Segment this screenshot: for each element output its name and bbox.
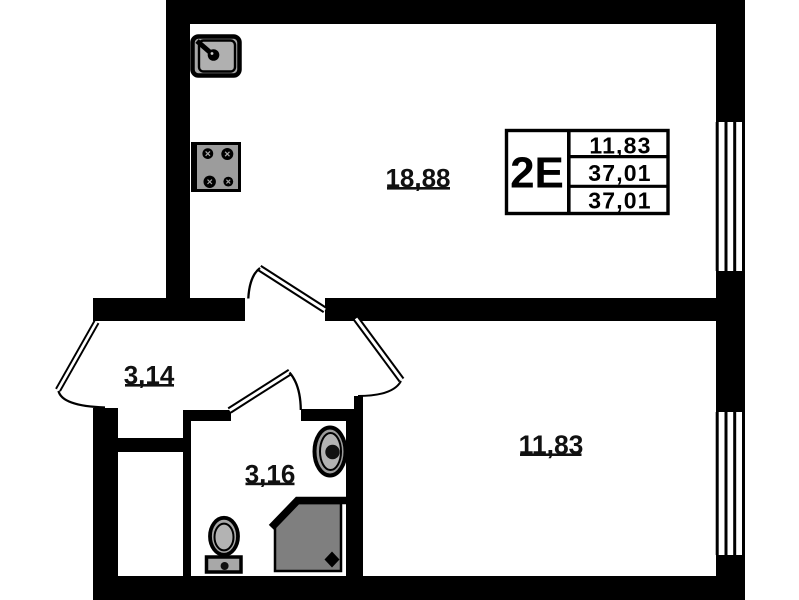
svg-text:2E: 2E [510, 149, 564, 198]
svg-text:37,01: 37,01 [588, 188, 652, 214]
svg-text:11,83: 11,83 [589, 133, 651, 159]
svg-text:37,01: 37,01 [588, 160, 652, 186]
